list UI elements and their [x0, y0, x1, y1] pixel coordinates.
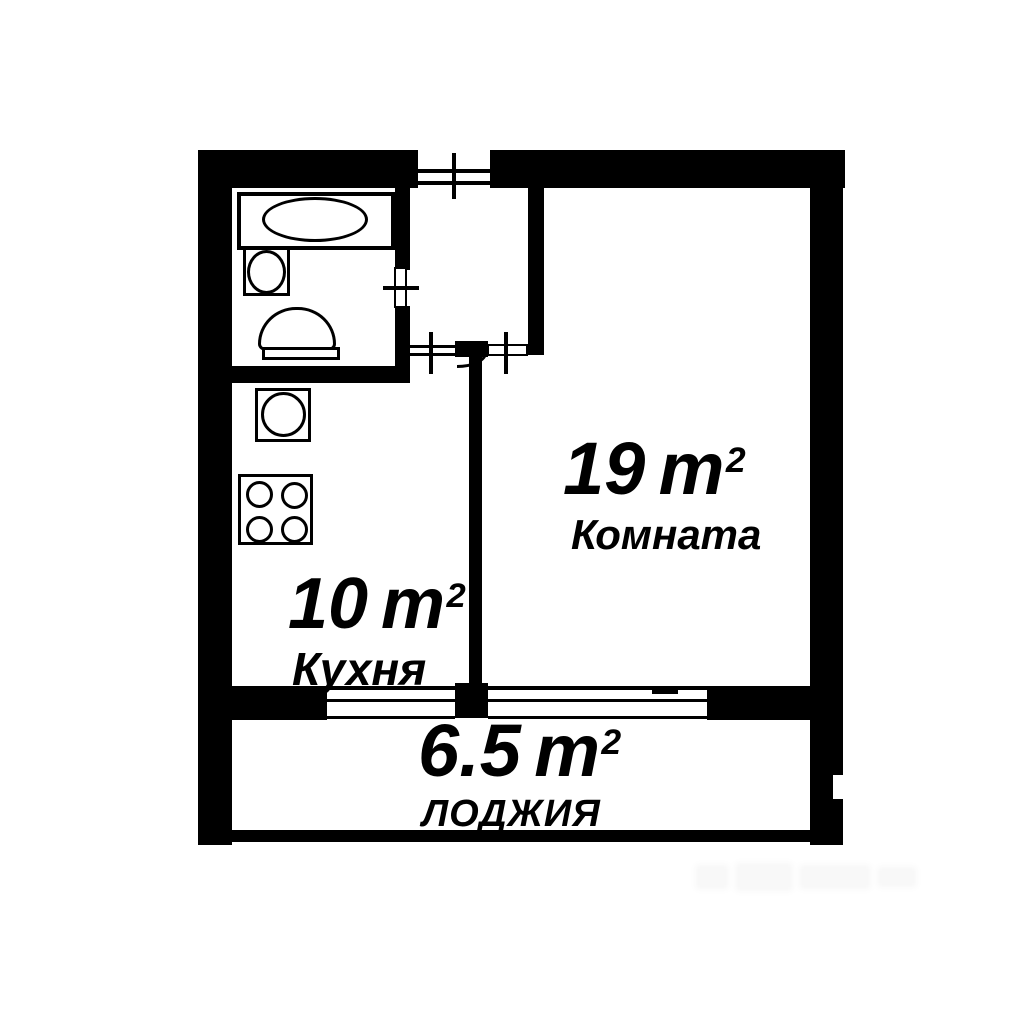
washbasin-bowl-icon: [247, 250, 286, 294]
stove-burner-icon: [281, 516, 308, 543]
kitchen-sink-bowl-icon: [261, 392, 306, 437]
kitchen-area: 10m2: [288, 568, 466, 640]
loggia-unit: m: [534, 709, 600, 792]
watermark-blob: [799, 864, 871, 890]
watermark-blob: [695, 864, 729, 890]
living-room-sup: 2: [726, 440, 746, 480]
stove-burner-icon: [246, 481, 273, 508]
room-window-cap: [652, 686, 678, 694]
toilet-base-icon: [262, 347, 340, 360]
wall-bathroom-right-upper: [395, 188, 410, 270]
wall-left: [198, 150, 232, 845]
wall-bathroom-right-lower: [395, 306, 410, 366]
living-room-name: Комната: [571, 514, 761, 556]
watermark-blob: [735, 862, 793, 892]
room-window-mid-line: [488, 699, 707, 702]
wall-right: [810, 150, 843, 845]
stove-burner-icon: [281, 482, 308, 509]
room-door-tick: [504, 332, 508, 374]
loggia-sup: 2: [601, 722, 621, 762]
wall-window-room-right: [707, 686, 811, 720]
kitchen-window-mid-line: [327, 699, 455, 702]
wall-top-left: [198, 150, 418, 188]
watermark-blob: [877, 866, 917, 888]
kitchen-area-value: 10: [288, 564, 368, 644]
kitchen-sup: 2: [446, 577, 465, 615]
kitchen-name: Кухня: [292, 646, 466, 692]
wall-right-notch: [833, 775, 843, 799]
bathroom-door-tick: [383, 286, 419, 290]
living-room-area-value: 19: [563, 427, 645, 510]
watermark: [695, 862, 930, 902]
wall-top-right: [490, 150, 845, 188]
kitchen-unit: m: [381, 564, 445, 644]
stove-burner-icon: [246, 516, 273, 543]
entrance-door-tick: [452, 153, 456, 199]
living-room-area: 19m2: [563, 432, 761, 506]
loggia-label: 6.5m2 ЛОДЖИЯ: [418, 714, 621, 833]
loggia-area-value: 6.5: [418, 709, 521, 792]
loggia-area: 6.5m2: [418, 714, 621, 788]
bathtub-basin-icon: [262, 197, 368, 242]
wall-bathroom-bottom: [232, 366, 410, 383]
living-room-label: 19m2 Комната: [563, 432, 761, 556]
loggia-name: ЛОДЖИЯ: [422, 795, 621, 833]
wall-partition: [469, 355, 482, 692]
kitchen-door-tick: [429, 332, 433, 374]
living-room-unit: m: [659, 427, 725, 510]
floor-plan: 19m2 Комната 10m2 Кухня 6.5m2 ЛОДЖИЯ: [0, 0, 1024, 1024]
toilet-icon: [258, 307, 336, 351]
wall-room-left: [528, 188, 544, 355]
kitchen-label: 10m2 Кухня: [288, 568, 466, 692]
